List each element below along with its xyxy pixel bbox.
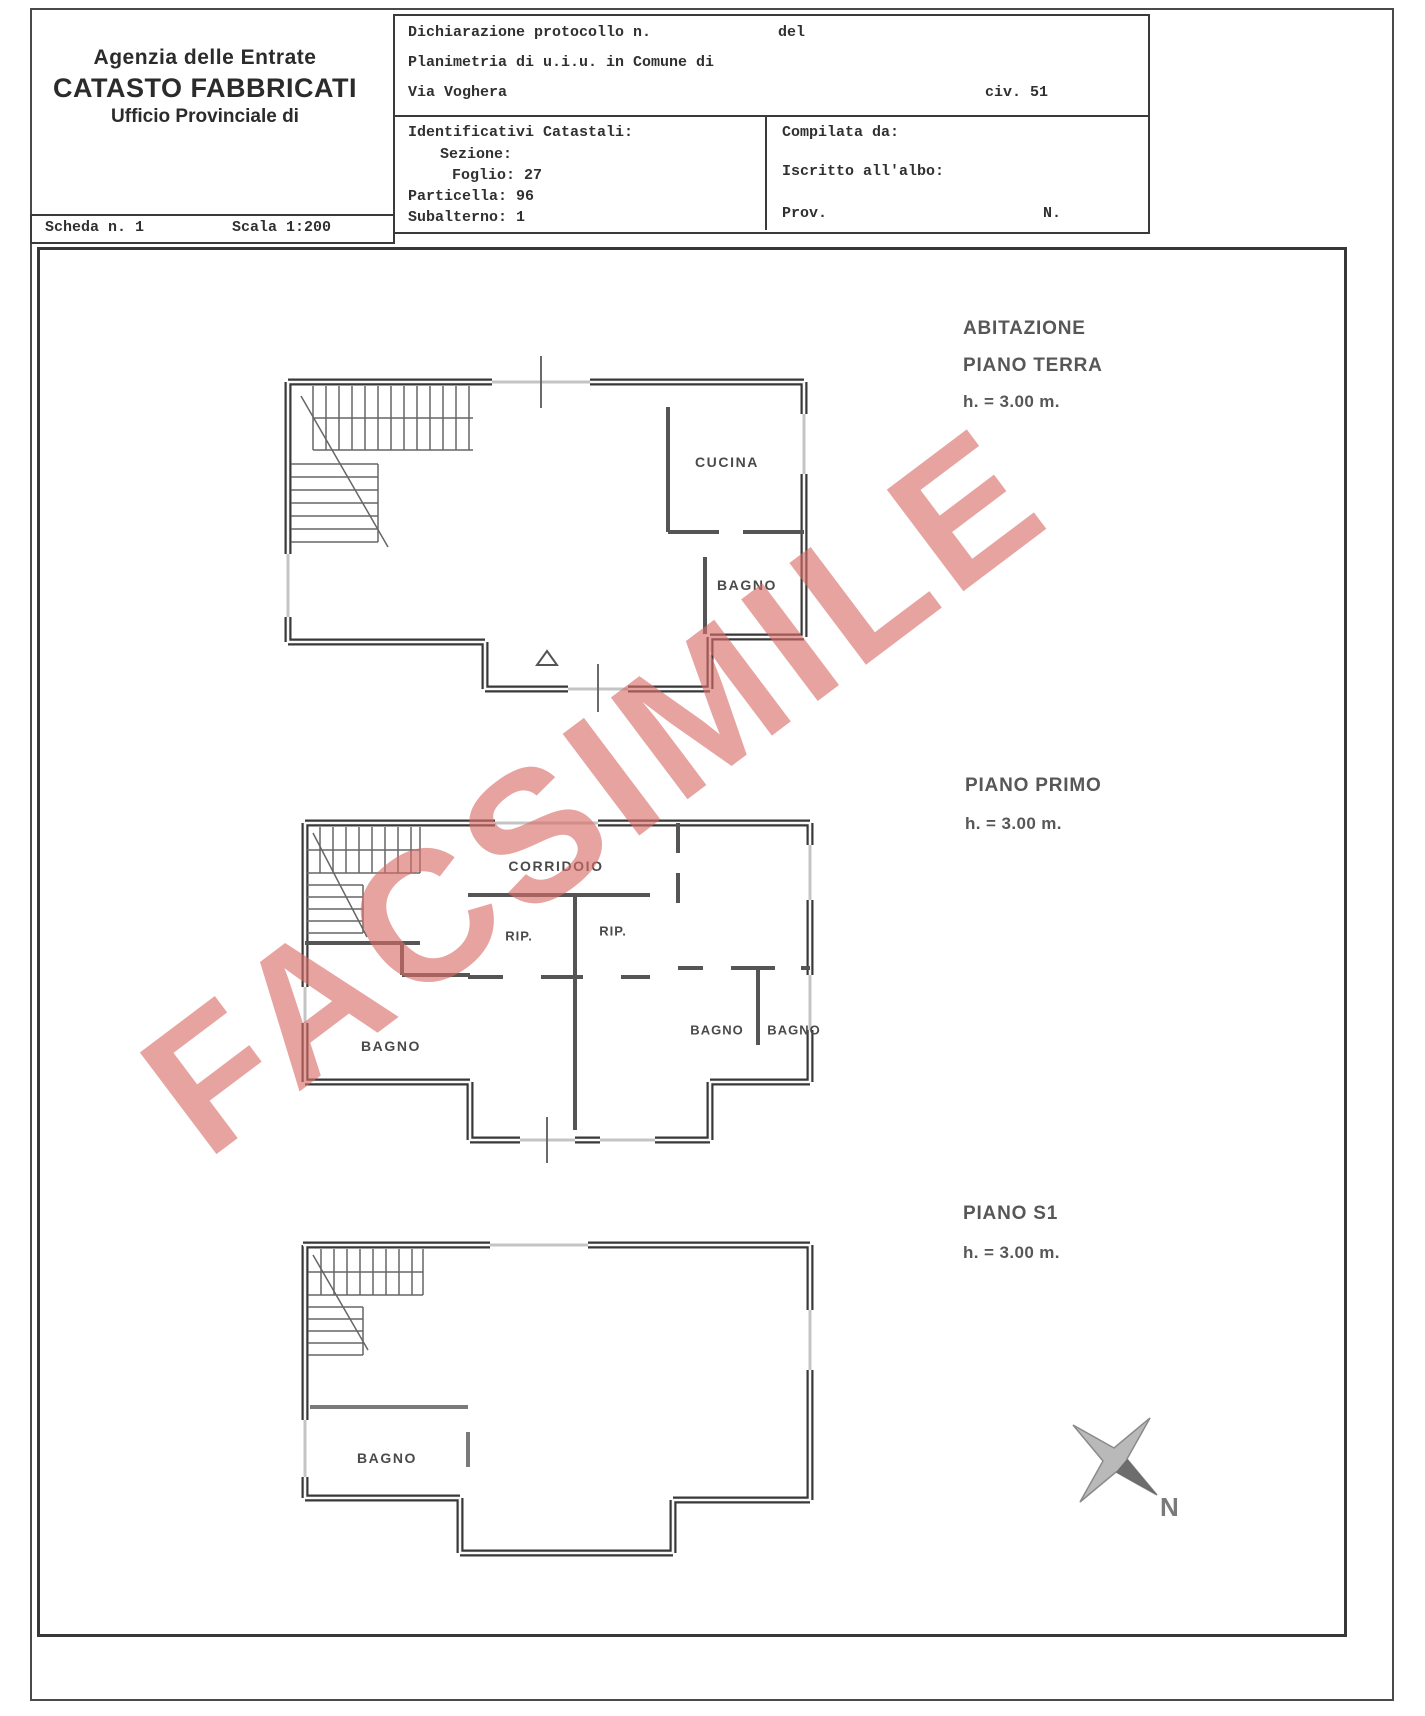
agency-line3: Ufficio Provinciale di <box>40 106 370 128</box>
street-label: Via Voghera <box>408 84 507 101</box>
room-label-bagno-first-mid: BAGNO <box>690 1023 743 1038</box>
caption-height-primo: h. = 3.00 m. <box>965 814 1062 834</box>
stairs-icon <box>308 1249 423 1355</box>
identificativi-title: Identificativi Catastali: <box>408 124 633 141</box>
agency-heading: Agenzia delle Entrate CATASTO FABBRICATI… <box>40 46 370 128</box>
scala-label: Scala 1:200 <box>232 219 331 236</box>
particella-label: Particella: 96 <box>408 188 534 205</box>
room-label-cucina: CUCINA <box>695 454 759 470</box>
s1-outer-walls <box>303 1245 810 1553</box>
caption-height-s1: h. = 3.00 m. <box>963 1243 1060 1263</box>
foglio-label: Foglio: 27 <box>452 167 542 184</box>
agency-line2: CATASTO FABBRICATI <box>40 73 370 104</box>
ground-window-ticks <box>541 356 598 712</box>
room-label-rip2: RIP. <box>599 924 627 939</box>
caption-piano-primo: PIANO PRIMO <box>965 775 1102 797</box>
agency-line1: Agenzia delle Entrate <box>40 46 370 70</box>
room-label-bagno-first-right: BAGNO <box>767 1023 820 1038</box>
compilata-label: Compilata da: <box>782 124 899 141</box>
stairs-icon <box>291 386 473 547</box>
room-label-bagno-s1: BAGNO <box>357 1450 417 1466</box>
cadastral-plan-page: Agenzia delle Entrate CATASTO FABBRICATI… <box>0 0 1425 1716</box>
subalterno-label: Subalterno: 1 <box>408 209 525 226</box>
north-label: N <box>1160 1492 1179 1523</box>
s1-window-gaps <box>305 1245 810 1477</box>
protocol-box-vdivider <box>765 115 767 230</box>
caption-piano-terra: PIANO TERRA <box>963 355 1103 377</box>
prov-label: Prov. <box>782 205 827 222</box>
protocol-box-hdivider <box>393 115 1148 117</box>
floor-plan-s1 <box>283 1235 813 1565</box>
caption-piano-s1: PIANO S1 <box>963 1203 1058 1225</box>
n-label: N. <box>1043 205 1061 222</box>
entrance-triangle-icon <box>537 651 557 665</box>
iscritto-label: Iscritto all'albo: <box>782 163 944 180</box>
declaration-label: Dichiarazione protocollo n. <box>408 24 651 41</box>
planimetria-label: Planimetria di u.i.u. in Comune di <box>408 54 714 71</box>
scheda-number: Scheda n. 1 <box>45 219 144 236</box>
caption-abitazione: ABITAZIONE <box>963 318 1086 340</box>
civ-label: civ. 51 <box>985 84 1048 101</box>
del-label: del <box>778 24 805 41</box>
sezione-label: Sezione: <box>440 146 512 163</box>
caption-height-terra: h. = 3.00 m. <box>963 392 1060 412</box>
